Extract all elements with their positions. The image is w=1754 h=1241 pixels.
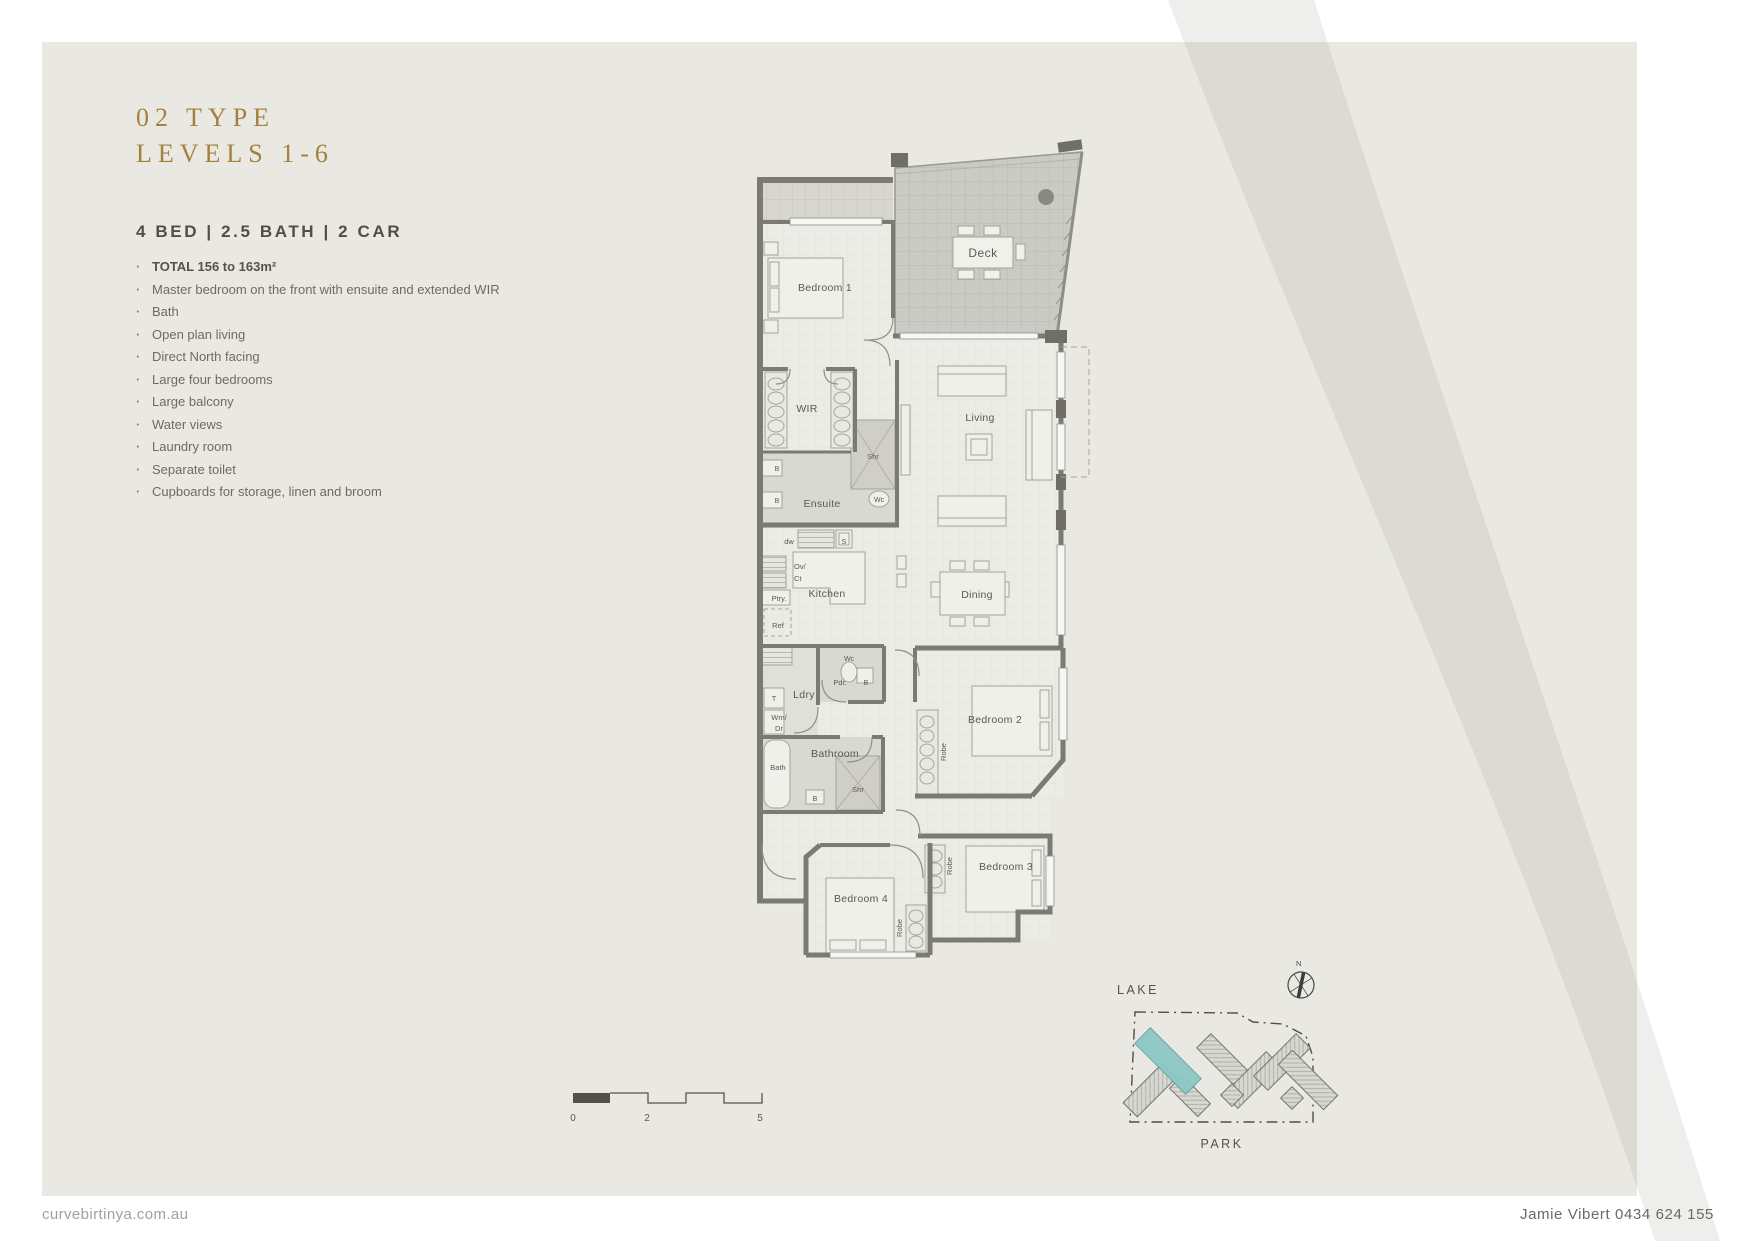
ensuite-basin1-label: B: [775, 466, 780, 473]
feature-item: Open plan living: [120, 324, 500, 347]
plan-levels-line: LEVELS 1-6: [136, 136, 334, 172]
plan-type-line: 02 TYPE: [136, 100, 334, 136]
pantry-label: Ptry.: [772, 594, 787, 603]
trough-label: T: [772, 696, 777, 703]
feature-item: Cupboards for storage, linen and broom: [120, 481, 500, 504]
feature-item: Large balcony: [120, 391, 500, 414]
site-map: LAKE PARK N: [1117, 959, 1338, 1151]
feature-item: Water views: [120, 414, 500, 437]
bedroom1-label: Bedroom 1: [798, 282, 852, 294]
laundry-label: Ldry: [793, 689, 815, 701]
dryer-label: Dr: [775, 724, 783, 733]
floor-plan: Deck: [757, 139, 1089, 958]
north-label: N: [1296, 959, 1301, 968]
drawing-layer: Deck: [0, 0, 1754, 1241]
feature-item: Direct North facing: [120, 346, 500, 369]
feature-item: Master bedroom on the front with ensuite…: [120, 279, 500, 302]
pdr-wc-label: Wc: [844, 656, 855, 663]
sink-label: S: [841, 537, 846, 546]
scale-0: 0: [570, 1113, 576, 1124]
bathroom-label: Bathroom: [811, 748, 859, 760]
bedroom2-robe-label: Robe: [939, 743, 948, 761]
website-link[interactable]: curvebirtinya.com.au: [42, 1206, 188, 1223]
feature-item: Separate toilet: [120, 459, 500, 482]
dishwasher-label: dw: [784, 537, 794, 546]
cooktop-label: Ct: [794, 574, 802, 583]
lake-label: LAKE: [1117, 983, 1159, 997]
oven-label: Ov/: [794, 562, 807, 571]
ensuite-wc-label: Wc: [874, 497, 885, 504]
pdr-label: Pdr.: [833, 678, 846, 687]
deck-area: Deck: [895, 139, 1083, 336]
compass-icon: N: [1286, 959, 1317, 1000]
wir-label: WIR: [796, 403, 817, 415]
bedroom4-robe-label: Robe: [895, 919, 904, 937]
scale-5: 5: [757, 1113, 763, 1124]
bedroom3-label: Bedroom 3: [979, 861, 1033, 873]
fridge-label: Ref: [772, 621, 785, 630]
scale-bar: 0 2 5: [570, 1093, 763, 1124]
feature-item: Large four bedrooms: [120, 369, 500, 392]
bedroom2-label: Bedroom 2: [968, 714, 1022, 726]
bath-label: Bath: [770, 763, 785, 772]
washer-label: Wm/: [771, 713, 787, 722]
feature-item: TOTAL 156 to 163m²: [120, 256, 500, 279]
bedroom4-label: Bedroom 4: [834, 893, 888, 905]
ensuite-basin2-label: B: [775, 498, 780, 505]
scale-2: 2: [644, 1113, 650, 1124]
living-label: Living: [965, 412, 994, 424]
deck-column: [1038, 189, 1054, 205]
ensuite-label: Ensuite: [803, 498, 840, 510]
spec-line: 4 BED | 2.5 BATH | 2 CAR: [136, 222, 402, 242]
brochure-page: Deck: [0, 0, 1754, 1241]
dining-label: Dining: [961, 589, 993, 601]
feature-item: Laundry room: [120, 436, 500, 459]
feature-item: Bath: [120, 301, 500, 324]
park-label: PARK: [1200, 1137, 1243, 1151]
bathroom-basin-label: B: [813, 796, 818, 803]
plan-title: 02 TYPE LEVELS 1-6: [136, 100, 334, 172]
pdr-basin-label: B: [864, 680, 869, 687]
ensuite-shower-label: Shr: [867, 452, 879, 461]
feature-list: TOTAL 156 to 163m² Master bedroom on the…: [120, 256, 500, 504]
bathroom-shower-label: Shr: [852, 785, 864, 794]
kitchen-label: Kitchen: [808, 588, 845, 600]
agent-contact: Jamie Vibert 0434 624 155: [1520, 1206, 1714, 1223]
deck-label: Deck: [968, 246, 998, 260]
bedroom3-robe-label: Robe: [945, 857, 954, 875]
